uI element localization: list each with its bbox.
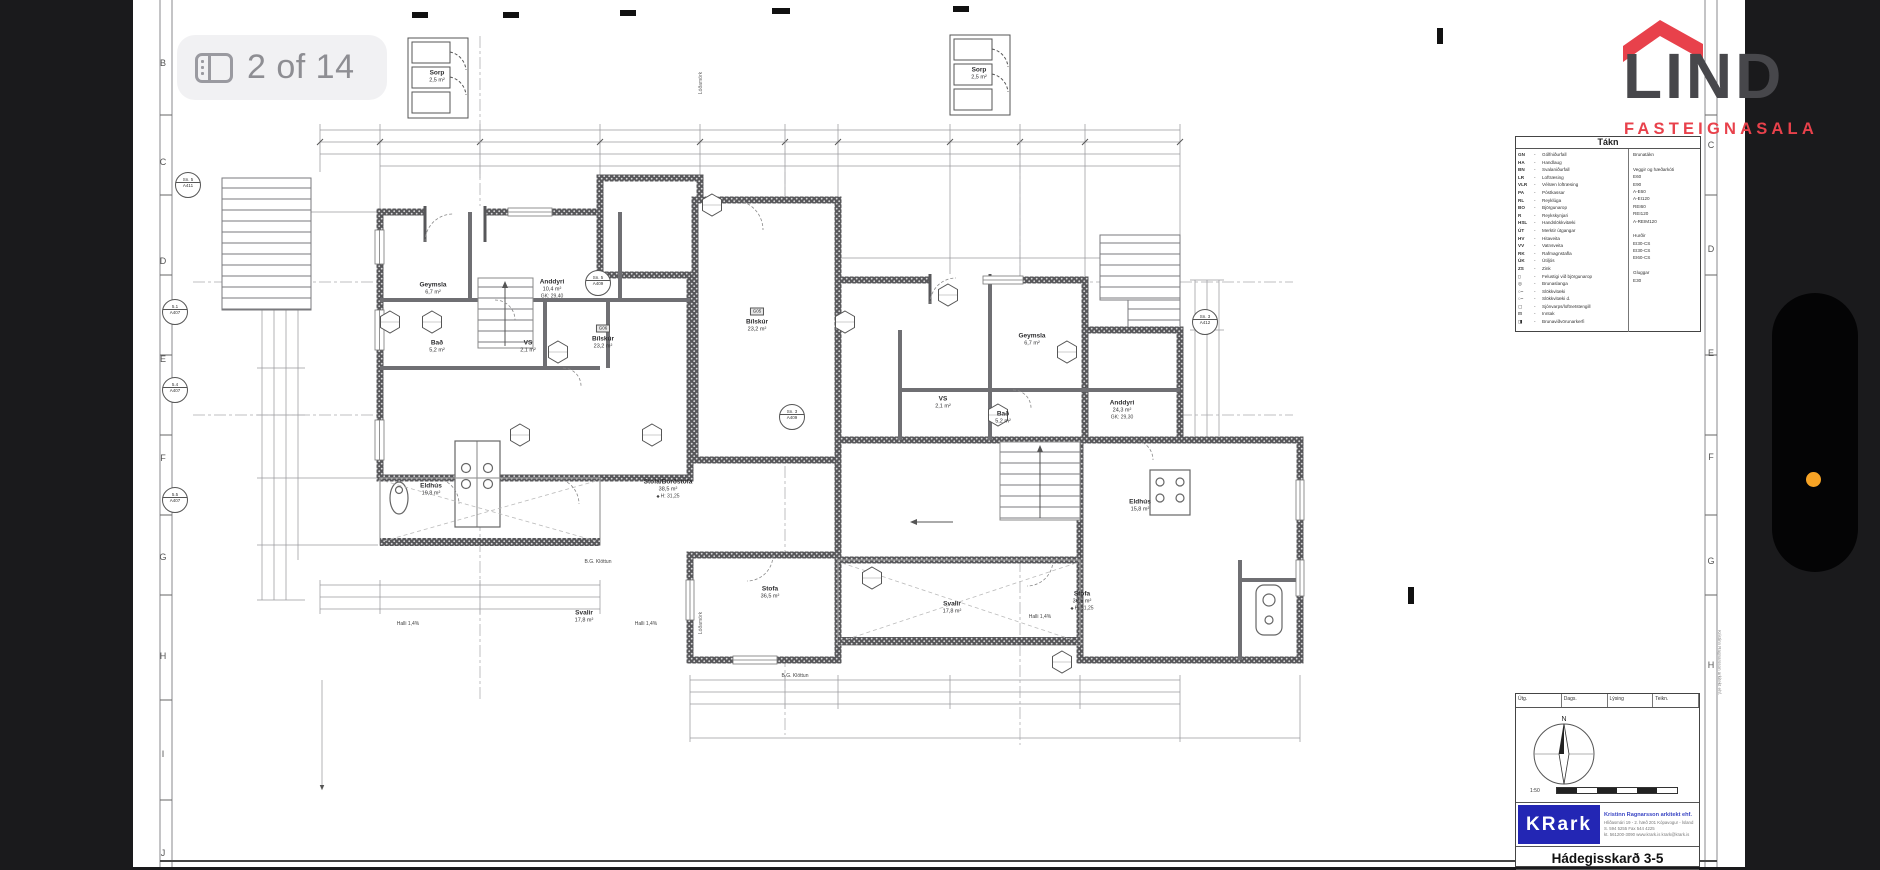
room-label: B.G. Klöttun	[782, 673, 809, 679]
legend-rating	[1633, 225, 1700, 232]
grid-letter: D	[1708, 244, 1715, 254]
legend-rating: EI30-CS	[1633, 247, 1700, 254]
sheet-grid-letters-right: CDEFGH	[1704, 140, 1718, 670]
room-label: Svalir17,8 m²	[943, 601, 962, 616]
legend-item: ○–-Slökkvitæki d.	[1518, 295, 1628, 303]
section-marker: 5.1A407	[162, 299, 188, 325]
lind-logo: LIND FASTEIGNASALA	[1623, 16, 1835, 140]
legend-rating: Gluggar	[1633, 269, 1700, 276]
letterbox-left	[0, 0, 133, 867]
room-label: Svalir17,8 m²	[575, 610, 594, 625]
room-label: VS2,1 m²	[520, 340, 536, 355]
compass-and-scale: N 1:50	[1516, 708, 1699, 803]
svg-text:N: N	[1561, 716, 1566, 723]
legend-rating: E60	[1633, 173, 1700, 180]
legend-item: HV-Hitaveita	[1518, 235, 1628, 243]
revision-strip: Útg.Dags.LýsingTeikn.	[1516, 694, 1699, 708]
legend-rating	[1633, 158, 1700, 165]
legend-item: ▯-Felustigi við björgunarop	[1518, 273, 1628, 281]
scale-label: 1:50	[1530, 788, 1540, 794]
legend-item: ○–-Slökkvitæki	[1518, 288, 1628, 296]
room-label: Stofa36,5 m²H: 31,25	[1070, 590, 1093, 611]
gallery-icon	[195, 53, 233, 83]
camera-cutout-pill	[1772, 293, 1858, 572]
room-label: Anddyri24,3 m²GK: 29,30	[1110, 399, 1135, 420]
legend-item: VV-Vatnsveita	[1518, 242, 1628, 250]
legend-item: HSL-Handslökkvitæki	[1518, 219, 1628, 227]
architect-logo: KRark	[1518, 805, 1600, 844]
grid-letter: I	[162, 749, 165, 759]
room-label: Bað5,2 m²	[995, 411, 1011, 426]
section-marker: Sn. 5A411	[175, 172, 201, 198]
title-block: Útg.Dags.LýsingTeikn. N 1:50 KRark Krist…	[1515, 693, 1700, 867]
legend-rating: A-REIM120	[1633, 218, 1700, 225]
grid-letter: B	[160, 58, 166, 68]
room-label: Sorp2,5 m²	[429, 70, 445, 85]
legend-rating: EI30-CS	[1633, 240, 1700, 247]
lot-line-note: Lóðamörk	[698, 72, 704, 94]
sheet-grid-letters-left: BCDEFGHIJ	[156, 58, 170, 858]
room-label: Eldhús19,8 m²	[420, 483, 442, 498]
legend-rating: Brunatákn	[1633, 151, 1700, 158]
legend-item: VLR-Vélræn loftræsing	[1518, 181, 1628, 189]
legend-item: ÚK-Útiljós	[1518, 257, 1628, 265]
revision-column: Útg.	[1516, 694, 1562, 707]
legend-item: GN-Gólfniðurfall	[1518, 151, 1628, 159]
scale-ruler	[1556, 787, 1678, 794]
legend-item: ◨-Brunaviðvörunarkerfi	[1518, 318, 1628, 326]
lot-line-note: Lóðamörk	[698, 612, 704, 634]
section-marker: Sn. 3A412	[1192, 309, 1218, 335]
legend-item: RL-Reyklúga	[1518, 197, 1628, 205]
recording-indicator-dot	[1806, 472, 1821, 487]
room-label: Anddyri10,4 m²GK: 29,40	[540, 278, 565, 299]
grid-letter: G	[1707, 556, 1714, 566]
legend-item: LR-Loftræsing	[1518, 174, 1628, 182]
sorp-boxes	[408, 35, 1010, 118]
room-label: B.G. Klöttun	[585, 559, 612, 565]
grid-letter: E	[1708, 348, 1714, 358]
room-label: Eldhús15,8 m²	[1129, 499, 1151, 514]
grid-letter: H	[1708, 660, 1715, 670]
legend-item: BO-Björgunarop	[1518, 204, 1628, 212]
room-label: Stofa36,5 m²	[761, 586, 780, 601]
section-marker: 5.4A407	[162, 377, 188, 403]
section-marker: 5.5A407	[162, 487, 188, 513]
legend-item: ⊟-Inntak	[1518, 310, 1628, 318]
legend-item: ▢-Sjónvarps/loftnetstengill	[1518, 303, 1628, 311]
legend-item: HA-Handlaug	[1518, 159, 1628, 167]
architect-name: Kristinn Ragnarsson arkitekt ehf.	[1604, 811, 1697, 819]
legend-rating: Veggir og hæðarkóti	[1633, 166, 1700, 173]
legend-rating: REI120	[1633, 210, 1700, 217]
legend-fire-ratings: BrunatáknVeggir og hæðarkótiE60E90A-E60A…	[1629, 149, 1700, 332]
copyright-vertical-text: Kristinn Ragnarsson arkitekt ehf.	[1717, 630, 1722, 695]
lind-tagline: FASTEIGNASALA	[1624, 120, 1818, 139]
legend-rating: E90	[1633, 181, 1700, 188]
grid-letter: F	[160, 453, 166, 463]
grid-letter: F	[1708, 452, 1714, 462]
grid-letter: H	[160, 651, 167, 661]
room-label: Stofa/Borðstofa38,5 m²H: 31,25	[644, 478, 693, 499]
grid-letter: G	[159, 552, 166, 562]
room-label: G06Bílskúr23,2 m²	[592, 316, 614, 351]
room-label: VS2,1 m²	[935, 396, 951, 411]
section-marker: Sn. 3A409	[779, 404, 805, 430]
legend-item: ÚT-Merktir útgangar	[1518, 227, 1628, 235]
page-counter-text: 2 of 14	[247, 48, 354, 87]
grid-letter: C	[1708, 140, 1715, 150]
grid-letter: J	[161, 848, 166, 858]
room-label: Geymsla6,7 m²	[419, 282, 446, 297]
legend-item: R-Reykskynjari	[1518, 212, 1628, 220]
legend-item: ZS-Zink	[1518, 265, 1628, 273]
legend-item: BN-Svalaniðurfall	[1518, 166, 1628, 174]
grid-letter: D	[160, 256, 167, 266]
grid-letter: C	[160, 157, 167, 167]
legend-rating	[1633, 262, 1700, 269]
north-compass: N	[1524, 712, 1604, 792]
floorplan-photo[interactable]	[133, 0, 1745, 867]
legend-rating: REI60	[1633, 203, 1700, 210]
room-label: G05Bílskúr23,2 m²	[746, 299, 768, 334]
room-label: Sorp2,5 m²	[971, 67, 987, 82]
lind-wordmark: LIND	[1623, 44, 1784, 108]
legend-rating: A-E60	[1633, 188, 1700, 195]
revision-column: Lýsing	[1608, 694, 1654, 707]
legend-box: Tákn GN-Gólfniðurfall HA-Handlaug BN-Sva…	[1515, 136, 1701, 332]
room-label: Halli 1,4%	[1029, 614, 1052, 620]
legend-rating: A-EI120	[1633, 195, 1700, 202]
legend-rating: EI60-CS	[1633, 254, 1700, 261]
legend-rating: Hurðir	[1633, 232, 1700, 239]
architect-contact: kt. 561200-3090 www.krark.is krark@krark…	[1604, 832, 1697, 838]
legend-rating: E30	[1633, 277, 1700, 284]
legend-item: ◎-Brunaslanga	[1518, 280, 1628, 288]
legend-item: RK-Rafmagnstafla	[1518, 250, 1628, 258]
room-label: Geymsla6,7 m²	[1018, 333, 1045, 348]
room-label: Halli 1,4%	[397, 621, 420, 627]
page-counter-badge: 2 of 14	[177, 35, 387, 100]
revision-column: Teikn.	[1653, 694, 1699, 707]
revision-column: Dags.	[1562, 694, 1608, 707]
grid-letter: E	[160, 354, 166, 364]
page-root: { "viewer": { "page_counter": "2 of 14" …	[0, 0, 1880, 867]
room-label: Halli 1,4%	[635, 621, 658, 627]
floorplan-drawing	[133, 0, 1745, 867]
legend-item: PA-Póstkassar	[1518, 189, 1628, 197]
legend-items: GN-Gólfniðurfall HA-Handlaug BN-Svalanið…	[1516, 149, 1629, 332]
section-marker: Sn. 5A409	[585, 270, 611, 296]
room-label: Bað5,2 m²	[429, 340, 445, 355]
